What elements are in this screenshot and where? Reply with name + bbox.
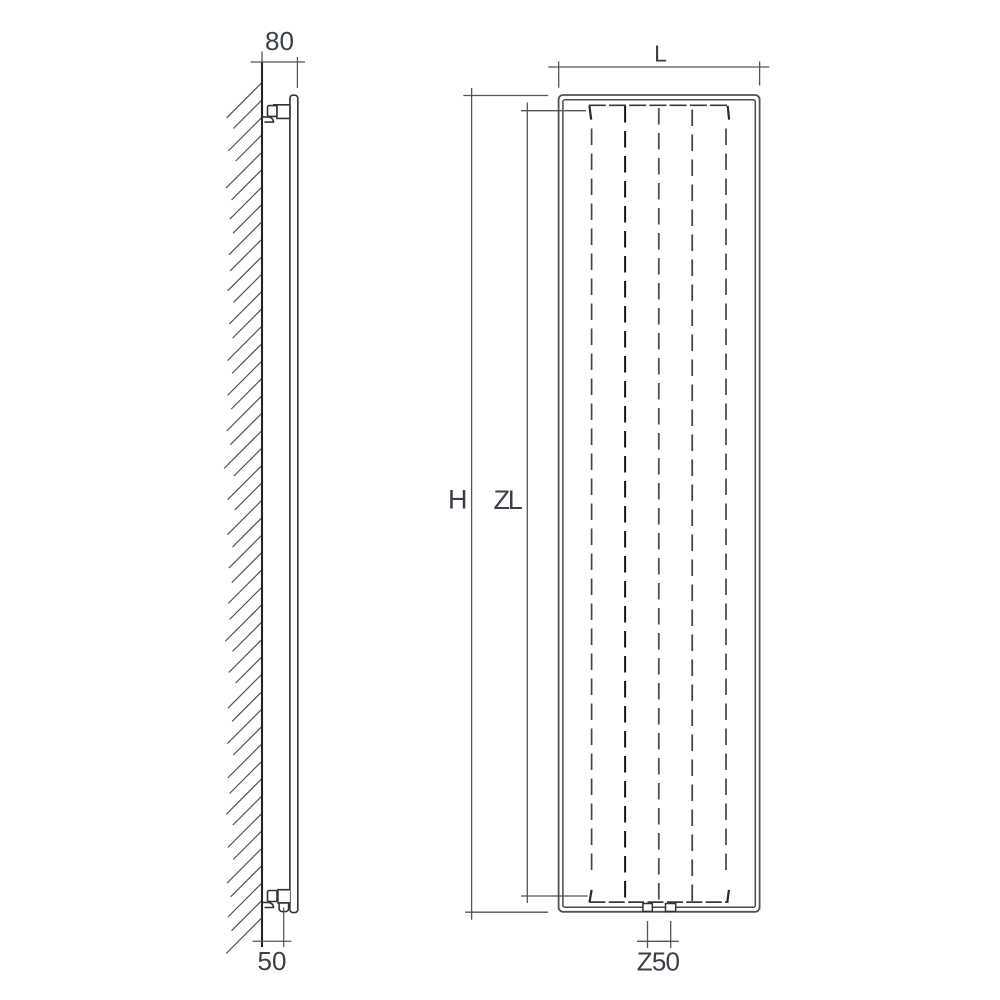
svg-text:80: 80 bbox=[265, 26, 294, 56]
svg-text:L: L bbox=[654, 40, 667, 66]
svg-text:ZL: ZL bbox=[493, 485, 522, 515]
svg-text:H: H bbox=[448, 485, 468, 515]
svg-text:Z50: Z50 bbox=[637, 946, 680, 976]
svg-text:50: 50 bbox=[258, 946, 287, 976]
